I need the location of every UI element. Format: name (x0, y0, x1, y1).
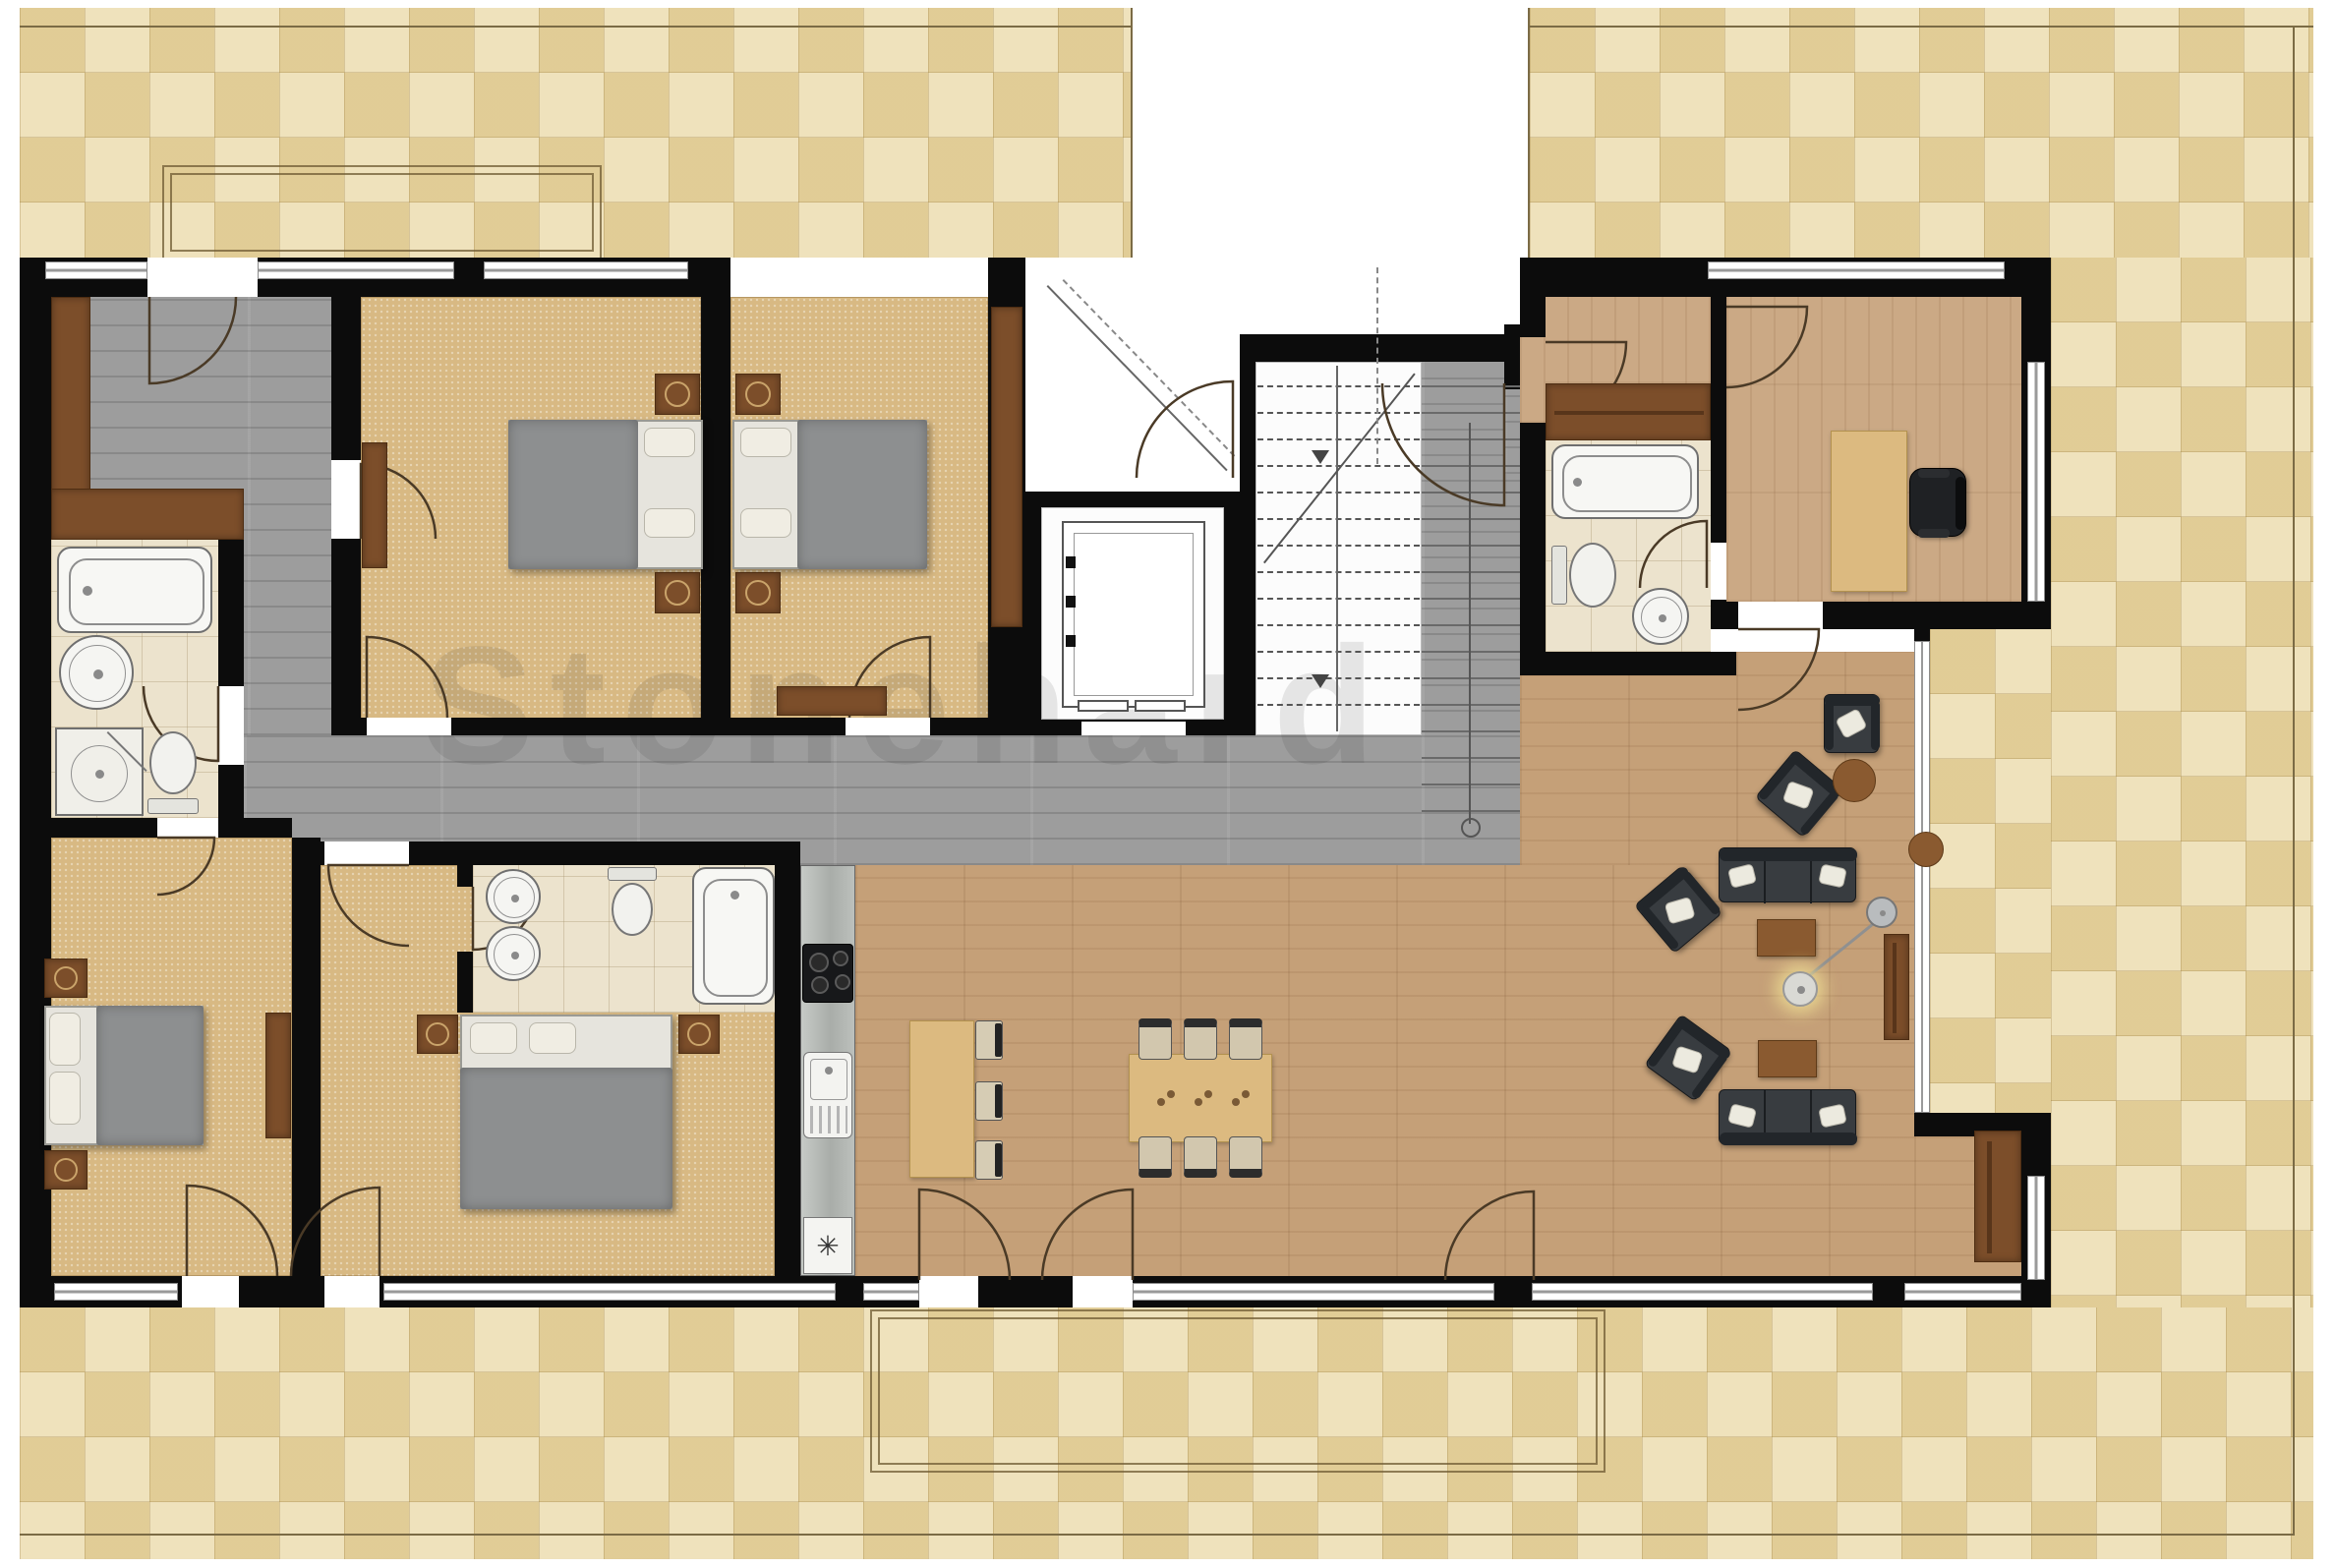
floor-lamp-shade (1866, 897, 1897, 928)
nightstand (655, 374, 700, 415)
wardrobe-handle (1554, 411, 1704, 415)
nightstand (655, 572, 700, 613)
cooktop (802, 944, 853, 1003)
wall (775, 842, 800, 1276)
door-swing (286, 637, 447, 798)
dining-chair (1184, 1136, 1217, 1178)
bar-stool (975, 1081, 1003, 1121)
terrace-door-swing (96, 1186, 277, 1366)
side-table (1833, 759, 1876, 802)
burner (809, 953, 829, 972)
washbasin (1632, 588, 1689, 645)
toilet (606, 865, 659, 940)
living-room-floor (855, 865, 1914, 1280)
nightstand (44, 958, 88, 998)
table-setting (1167, 1090, 1175, 1098)
freezer-symbol: ✳ (803, 1227, 852, 1266)
sofa-back (1720, 848, 1857, 861)
void-dashed-line (1376, 267, 1378, 464)
nightstand-ring (54, 1158, 78, 1182)
door-swing (1646, 226, 1807, 387)
dining-chair (1184, 1018, 1217, 1060)
armchair (1824, 694, 1879, 753)
desk (1831, 431, 1907, 592)
nightstand-ring (665, 580, 690, 606)
office-chair (1909, 468, 1966, 537)
pillow (49, 1072, 81, 1125)
console-line (1893, 943, 1897, 1033)
stair-tread (1422, 518, 1520, 520)
coffee-table (1757, 919, 1816, 957)
drainboard (810, 1106, 847, 1133)
stair-tread (1422, 545, 1520, 547)
stair-tread (1257, 598, 1420, 600)
terrace-right (2051, 258, 2313, 1307)
nightstand (417, 1015, 458, 1054)
throw-pillow (1671, 1045, 1703, 1074)
lamp-bulb (1880, 910, 1886, 916)
burner (833, 951, 848, 966)
sofa-seam (1810, 861, 1812, 903)
throw-pillow (1818, 1104, 1847, 1129)
table-setting (1204, 1090, 1212, 1098)
terrace-edge (1528, 8, 1530, 258)
terrace-edge (2293, 26, 2295, 1534)
stair-tread (1422, 730, 1520, 732)
throw-pillow (1818, 864, 1847, 889)
nightstand-ring (665, 381, 690, 407)
wardrobe (51, 489, 244, 540)
table-setting (1242, 1090, 1250, 1098)
nightstand (678, 1015, 720, 1054)
stair-tread (1422, 810, 1520, 812)
dining-table (1129, 1054, 1272, 1142)
faucet (825, 1067, 833, 1074)
stair-tread (1422, 624, 1520, 626)
sofa (1719, 847, 1856, 902)
throw-pillow (1727, 1103, 1757, 1129)
terrace-edge (1131, 8, 1133, 258)
sofa-seam (1810, 1090, 1812, 1132)
door-swing (286, 464, 436, 613)
pillow (740, 428, 791, 457)
armchair-arm (1871, 701, 1880, 750)
bed-blanket (797, 420, 927, 569)
drain (83, 586, 92, 596)
throw-pillow (1782, 781, 1815, 810)
lamp-pole (1797, 986, 1805, 994)
burner (835, 974, 850, 990)
elevator-door-opening (1081, 722, 1186, 735)
door-swing (849, 637, 1011, 798)
stair-tread (1422, 677, 1520, 679)
stair-tread (1422, 784, 1520, 785)
wardrobe (991, 307, 1022, 627)
drain (511, 952, 519, 959)
elevator-door (1078, 700, 1129, 712)
elevator-door (1135, 700, 1186, 712)
wardrobe (1546, 383, 1711, 440)
wall (331, 258, 361, 460)
console-shelf (1884, 934, 1909, 1040)
side-table (1908, 832, 1944, 867)
bed-blanket (96, 1006, 204, 1145)
throw-pillow (1664, 897, 1696, 925)
tv-board (265, 1013, 291, 1138)
bathtub (692, 867, 775, 1005)
terrace-right-mid (1930, 629, 2051, 1117)
pillow (644, 428, 695, 457)
terrace-edge (20, 1534, 2295, 1536)
burner (811, 976, 829, 994)
bathtub-inner (1562, 455, 1692, 512)
tv-board (362, 442, 387, 568)
drain (93, 669, 103, 679)
sofa-seam (1764, 1090, 1766, 1132)
drain (730, 891, 739, 900)
bed-blanket (508, 420, 638, 569)
pillow (49, 1013, 81, 1066)
terrace-edge (1530, 26, 2313, 28)
toilet-tank (147, 798, 199, 814)
stool-back (995, 1023, 1002, 1057)
chair-back (1956, 477, 1965, 530)
toilet-bowl (1569, 543, 1616, 608)
pillow (529, 1022, 576, 1054)
toilet (146, 731, 201, 816)
nightstand-ring (54, 966, 78, 990)
terrace-door-swing (829, 1190, 1010, 1370)
washbasin (486, 926, 541, 981)
shower (55, 727, 144, 816)
throw-pillow (1727, 863, 1757, 889)
elevator-rail (1066, 635, 1076, 647)
nightstand-ring (426, 1022, 449, 1046)
stool-back (995, 1084, 1002, 1118)
toilet-bowl (612, 883, 653, 936)
pillow (644, 508, 695, 538)
washbasin (486, 869, 541, 924)
wall (218, 765, 244, 818)
terrace-door-swing (1042, 1190, 1223, 1370)
dresser (777, 686, 887, 716)
floor-lamp-base (1782, 971, 1818, 1007)
toilet-bowl (149, 731, 197, 794)
window (258, 261, 454, 279)
nightstand-ring (745, 381, 771, 407)
table-setting (1195, 1098, 1202, 1106)
table-setting (1232, 1098, 1240, 1106)
stool-back (995, 1143, 1002, 1177)
drain (511, 895, 519, 902)
sofa-back (1720, 1132, 1857, 1145)
drain (95, 770, 104, 779)
window (2027, 1176, 2045, 1280)
stair-walkline-start (1461, 818, 1481, 838)
elevator-rail (1066, 596, 1076, 608)
armchair-arm (1825, 701, 1834, 750)
window (1904, 1283, 2021, 1301)
stair-tread (1257, 651, 1420, 653)
dining-chair (1138, 1018, 1172, 1060)
nightstand (735, 374, 781, 415)
floor-plan: Stonehard✳ (0, 0, 2335, 1568)
bathtub (57, 547, 212, 633)
kitchen-island (909, 1020, 974, 1178)
stair-tread (1422, 598, 1520, 600)
window (2027, 362, 2045, 602)
nightstand (44, 1150, 88, 1190)
window (484, 261, 688, 279)
elevator-rail (1066, 556, 1076, 568)
nightstand (735, 572, 781, 613)
terrace-top-right (1530, 8, 2313, 258)
chair-arm (1918, 469, 1950, 478)
dining-chair (1229, 1136, 1262, 1178)
sofa-seam (1764, 861, 1766, 903)
bed-blanket (460, 1068, 672, 1209)
stair-tread (1422, 757, 1520, 759)
bathtub (1551, 444, 1699, 519)
stair-arrow (1312, 674, 1329, 688)
kitchen-sink (803, 1052, 852, 1138)
terrace-door-swing (1445, 1191, 1622, 1368)
toilet (1551, 541, 1618, 610)
dining-chair (1229, 1018, 1262, 1060)
terrace-door-swing (291, 1188, 468, 1365)
stair-tread (1257, 704, 1420, 706)
toilet-tank (1551, 546, 1567, 605)
toilet-tank (608, 867, 657, 881)
washbasin (59, 635, 134, 710)
stair-tread (1257, 677, 1420, 679)
wall (457, 952, 473, 1013)
table-setting (1157, 1098, 1165, 1106)
stair-rail (1336, 366, 1338, 731)
chair-arm (1918, 529, 1950, 538)
stair-tread (1257, 624, 1420, 626)
coffee-table (1758, 1040, 1817, 1077)
window (1914, 641, 1930, 1113)
wall (701, 258, 730, 735)
tv-console (1974, 1131, 2021, 1262)
terrace-edge (20, 26, 1133, 28)
wall (1025, 492, 1041, 735)
sofa (1719, 1089, 1856, 1144)
pillow (470, 1022, 517, 1054)
drain (1659, 614, 1666, 622)
dining-chair (1138, 1136, 1172, 1178)
nightstand-ring (687, 1022, 711, 1046)
pillow (740, 508, 791, 538)
nightstand-ring (745, 580, 771, 606)
stair-tread (1422, 704, 1520, 706)
throw-pillow (1835, 708, 1867, 739)
stair-tread (1422, 651, 1520, 653)
bar-stool (975, 1140, 1003, 1180)
bar-stool (975, 1020, 1003, 1060)
drain (1573, 478, 1582, 487)
entry-door-swing (1137, 381, 1329, 574)
console-line (1987, 1141, 1992, 1253)
sink-basin (810, 1059, 847, 1100)
stair-tread (1422, 571, 1520, 573)
